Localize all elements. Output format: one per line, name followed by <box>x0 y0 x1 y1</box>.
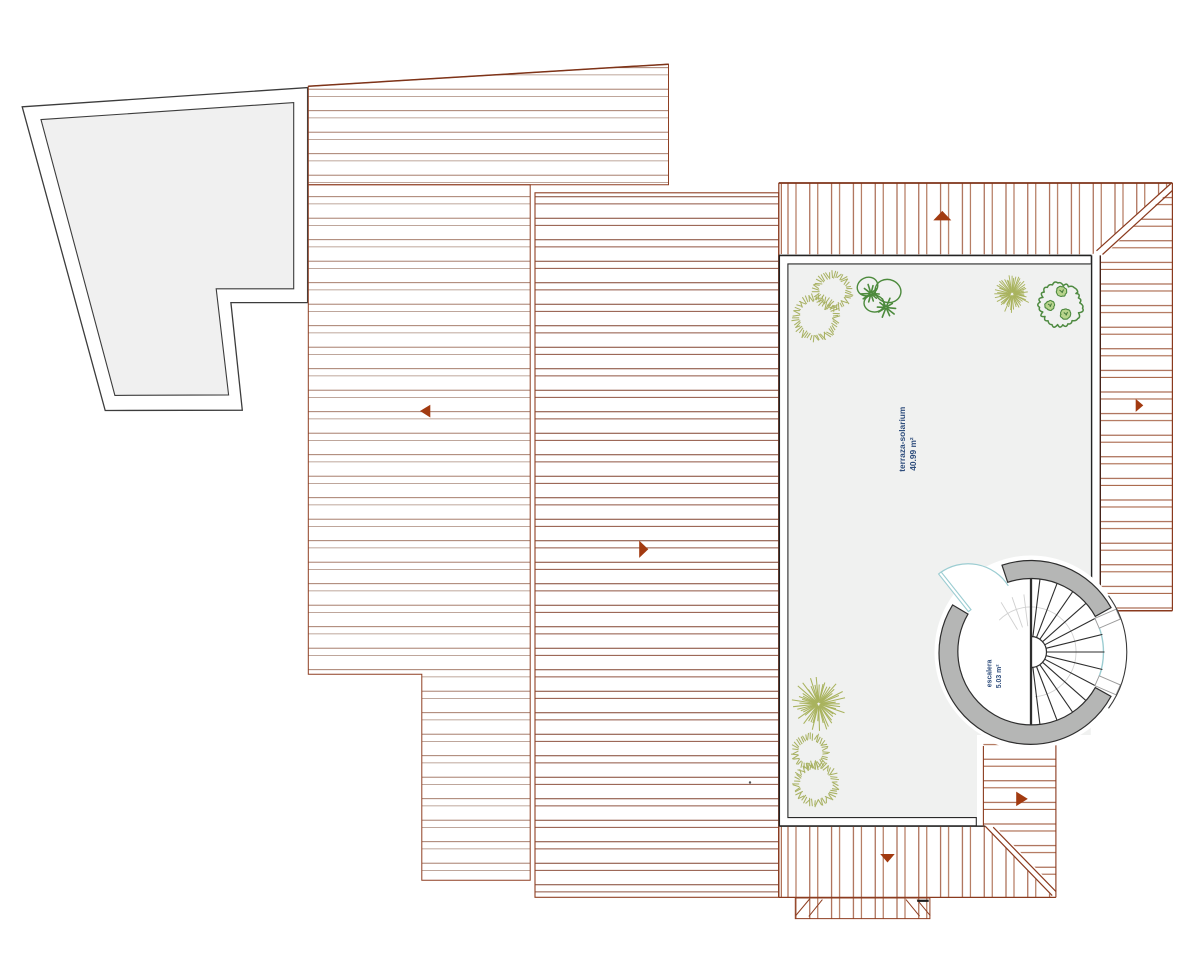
svg-text:40.99 m²: 40.99 m² <box>908 437 918 471</box>
svg-text:escalera: escalera <box>987 659 994 687</box>
svg-text:5.03 m²: 5.03 m² <box>996 664 1003 688</box>
svg-text:terraza-solarium: terraza-solarium <box>897 407 907 472</box>
